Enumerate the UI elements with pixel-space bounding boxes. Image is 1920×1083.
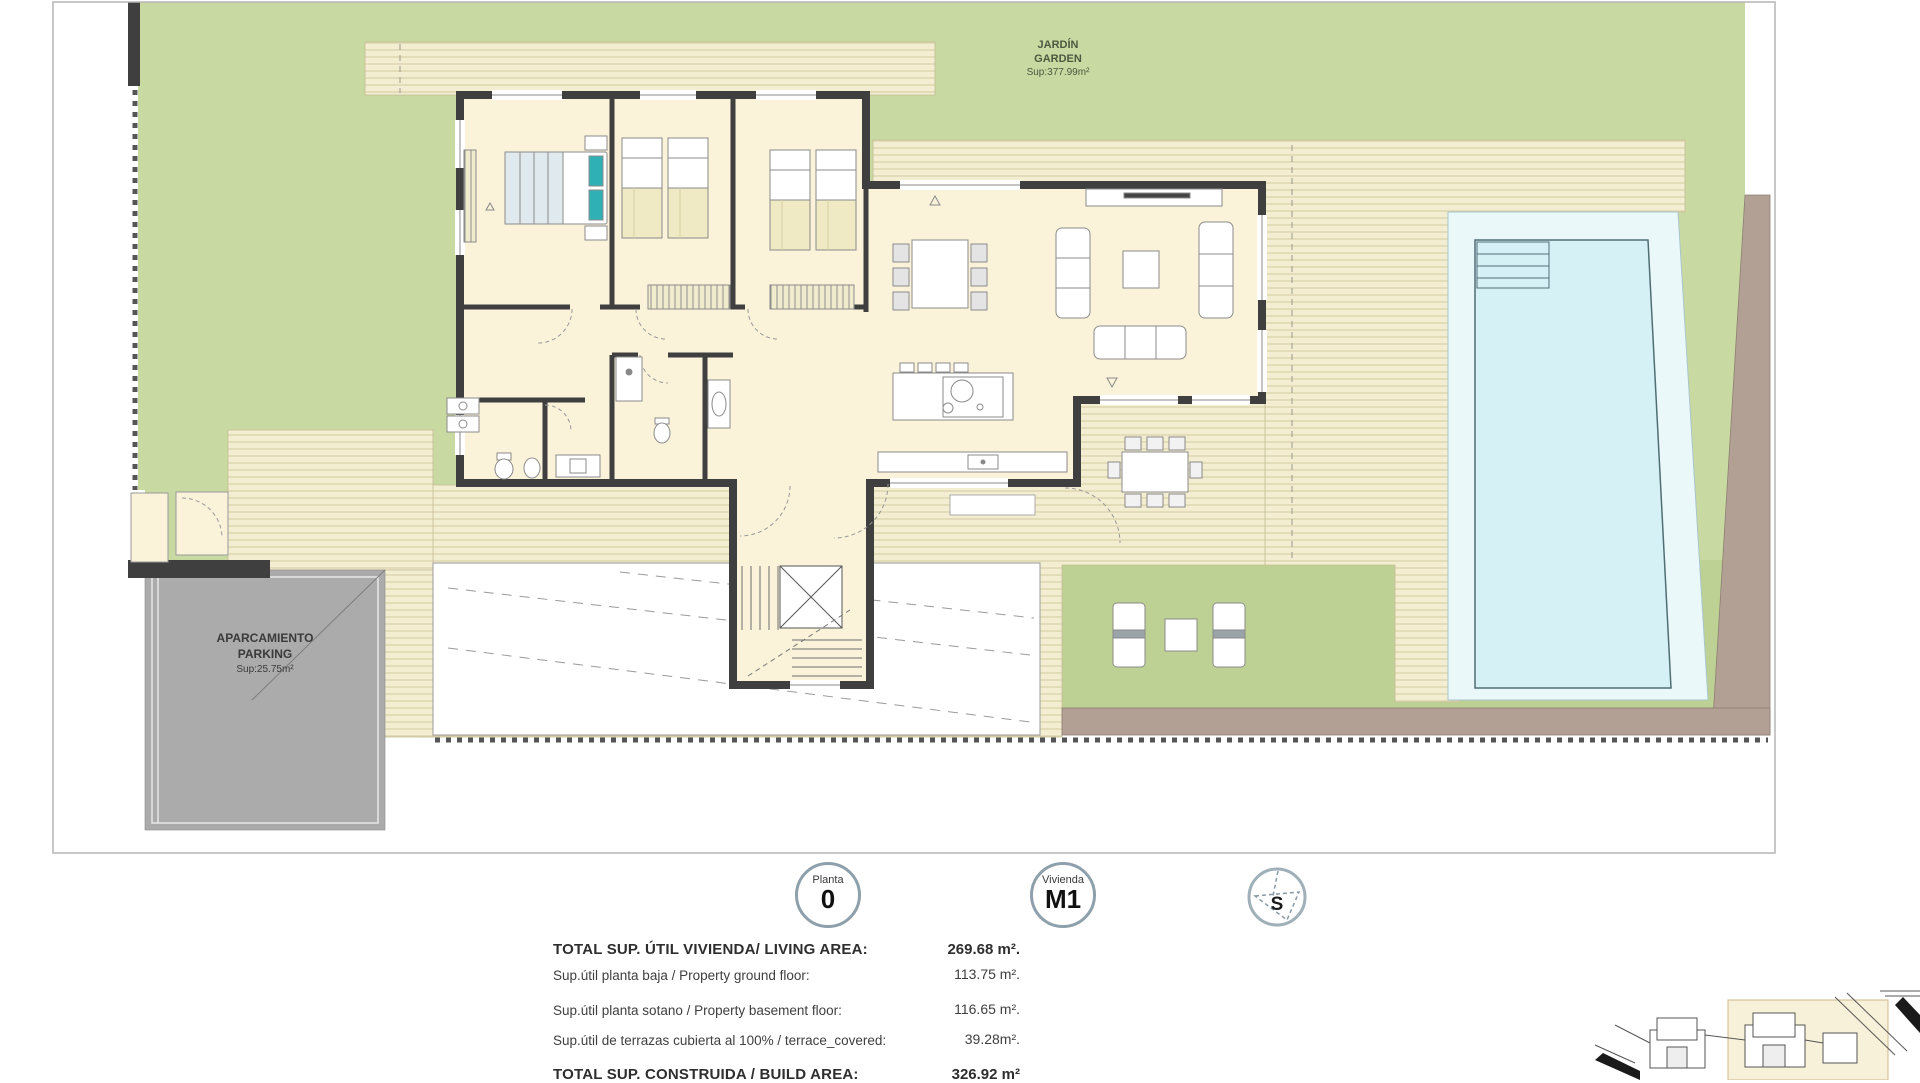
garden-label-es: JARDÍN [998,38,1118,52]
floor-badge-value: 0 [798,886,858,912]
pool-water [1475,240,1671,688]
summary-row-value: 269.68 m². [850,941,1020,958]
compass-south-label: S [1271,894,1284,915]
dining-table [893,240,987,310]
compass-badge: S [1246,866,1308,928]
kitchen-counter [878,452,1067,472]
summary-row-value: 326.92 m² [850,1066,1020,1083]
coffee-table [1123,251,1159,288]
outdoor-step [950,495,1035,515]
parking-label: APARCAMIENTO PARKING Sup:25.75m² [175,630,355,678]
master-bed [505,136,607,240]
site-overview-sketch [1595,991,1920,1080]
summary-row-value: 39.28m². [850,1031,1020,1047]
entrance-gate-rooms [131,492,228,562]
bedroom3-wardrobe [770,285,854,309]
summary-row-value: 113.75 m². [850,966,1020,982]
summary-row-value: 116.65 m². [850,1001,1020,1017]
bedroom2-wardrobe [648,285,730,309]
parking-label-es: APARCAMIENTO [175,630,355,646]
tv-unit [1086,189,1222,206]
dwelling-badge: Vivienda M1 [1030,862,1096,928]
parking-area [128,560,385,830]
boundary-wall-segment [128,2,140,86]
garden-label-en: GARDEN [998,52,1118,66]
garden-label: JARDÍN GARDEN Sup:377.99m² [998,38,1118,80]
compass-icon: S [1246,866,1308,928]
floor-plan [0,0,1920,1080]
parking-area-value: Sup:25.75m² [175,662,355,678]
garden-area-value: Sup:377.99m² [998,66,1118,80]
dwelling-badge-value: M1 [1033,886,1093,912]
floor-badge: Planta 0 [795,862,861,928]
parking-label-en: PARKING [175,646,355,662]
pool [1448,212,1708,700]
master-wardrobe [464,150,476,242]
